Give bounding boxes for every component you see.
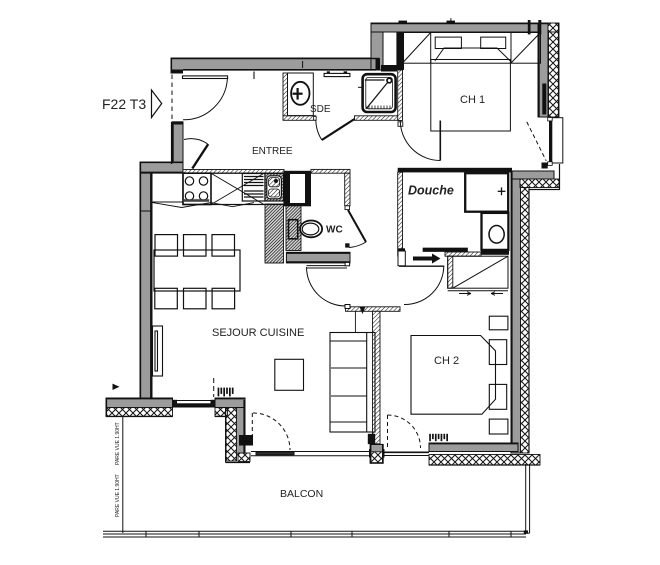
svg-text:BALCON: BALCON: [280, 488, 323, 500]
svg-text:CH 2: CH 2: [434, 355, 459, 367]
svg-text:PARE VUE 1.90HT: PARE VUE 1.90HT: [115, 474, 121, 517]
svg-text:SEJOUR CUISINE: SEJOUR CUISINE: [212, 327, 304, 339]
svg-text:Douche: Douche: [408, 184, 454, 198]
svg-text:ENTREE: ENTREE: [252, 146, 293, 157]
svg-text:SDE: SDE: [310, 104, 331, 115]
svg-text:CH 1: CH 1: [460, 94, 485, 106]
svg-text:WC: WC: [326, 225, 343, 236]
svg-text:F22 T3: F22 T3: [102, 96, 146, 112]
svg-text:PARE VUE 1.90HT: PARE VUE 1.90HT: [115, 422, 121, 465]
